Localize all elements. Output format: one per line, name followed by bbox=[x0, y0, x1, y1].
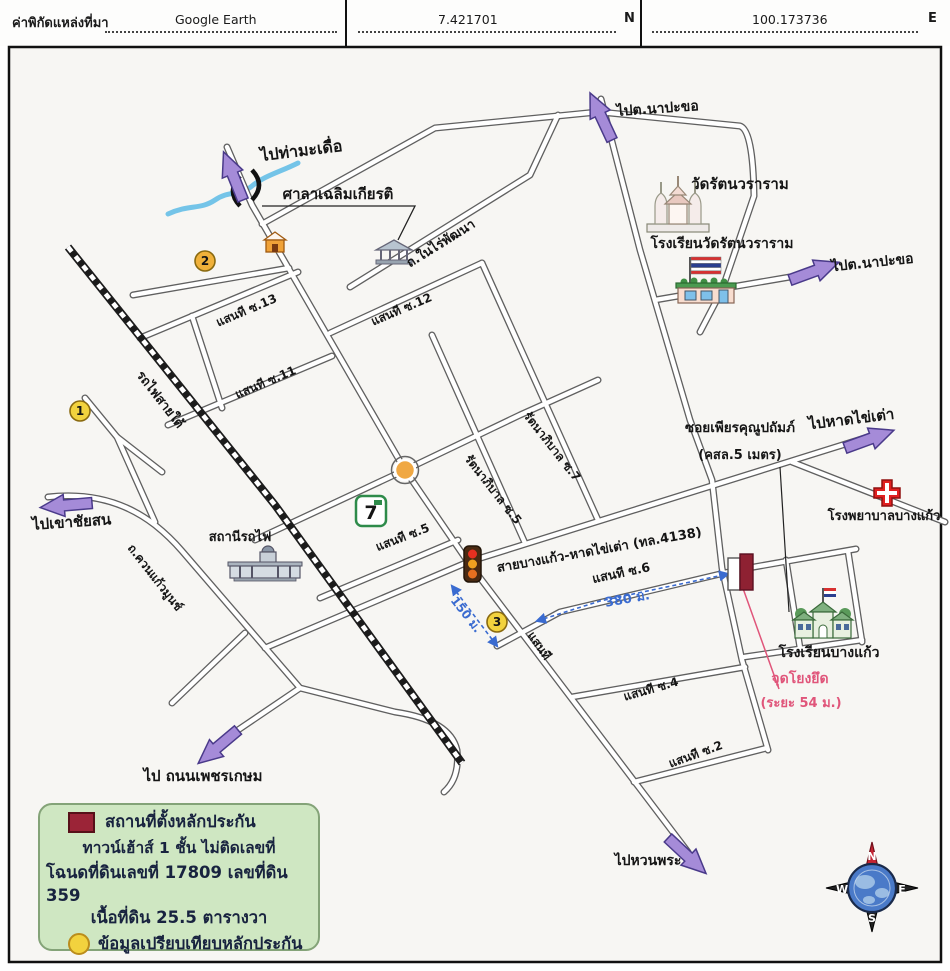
map-legend: สถานที่ตั้งหลักประกัน ทาวน์เฮ้าส์ 1 ชั้น… bbox=[38, 803, 320, 951]
label-anchor-distance: (ระยะ 54 ม.) bbox=[760, 696, 841, 711]
legend-townhouse-line: ทาวน์เฮ้าส์ 1 ชั้น ไม่ติดเลขที่ bbox=[83, 835, 276, 860]
label-wat-school: โรงเรียนวัดรัตนวราราม bbox=[650, 234, 794, 252]
label-to-huan-phra: ไปหวนพระ bbox=[613, 851, 682, 869]
comparison-marker-1: 1 bbox=[70, 401, 90, 421]
scanned-location-map-page: { "header": { "source_label": "ค่าพิกัดแ… bbox=[0, 0, 950, 971]
roundabout-icon bbox=[392, 457, 419, 484]
svg-text:2: 2 bbox=[201, 254, 209, 268]
comparison-marker-3: 3 bbox=[487, 612, 507, 632]
traffic-light-icon bbox=[464, 546, 481, 582]
seven-eleven-icon: 7 bbox=[356, 496, 386, 526]
label-to-phetkasem: ไป ถนนเพชรเกษม bbox=[141, 766, 262, 785]
legend-deed-line: โฉนดที่ดินเลขที่ 17809 เลขที่ดิน 359 bbox=[46, 860, 312, 905]
label-railway-station: สถานีรถไฟ bbox=[209, 528, 272, 545]
svg-text:1: 1 bbox=[76, 404, 84, 418]
compass-west-label: W bbox=[836, 883, 848, 896]
label-bangkaeo-school: โรงเรียนบางแก้ว bbox=[778, 643, 880, 661]
label-anchor-point: จุดโยงยึด bbox=[771, 669, 828, 687]
comparison-marker-2: 2 bbox=[195, 251, 215, 271]
legend-comparison-label: ข้อมูลเปรียบเทียบหลักประกัน bbox=[98, 931, 302, 957]
label-hospital: โรงพยาบาลบางแก้ว bbox=[827, 507, 941, 524]
legend-area-line: เนื้อที่ดิน 25.5 ตารางวา bbox=[91, 905, 268, 931]
compass-east-label: E bbox=[898, 883, 906, 896]
compass-north-label: N bbox=[867, 850, 876, 863]
label-wat-rattana: วัดรัตนวราราม bbox=[691, 175, 789, 193]
legend-collateral-label: สถานที่ตั้งหลักประกัน bbox=[105, 809, 256, 835]
collateral-townhouse-icon bbox=[728, 554, 753, 590]
svg-text:7: 7 bbox=[364, 502, 377, 524]
label-phian-soi-size: (คสล.5 เมตร) bbox=[698, 448, 781, 463]
label-phian-soi: ซอยเพียรคุณูปถัมภ์ bbox=[685, 419, 795, 436]
comparison-circle-icon bbox=[68, 933, 90, 955]
svg-text:3: 3 bbox=[493, 615, 501, 629]
label-sala-chalermkiat: ศาลาเฉลิมเกียรติ bbox=[283, 185, 394, 203]
collateral-square-icon bbox=[68, 812, 95, 833]
compass-south-label: S bbox=[868, 912, 876, 925]
